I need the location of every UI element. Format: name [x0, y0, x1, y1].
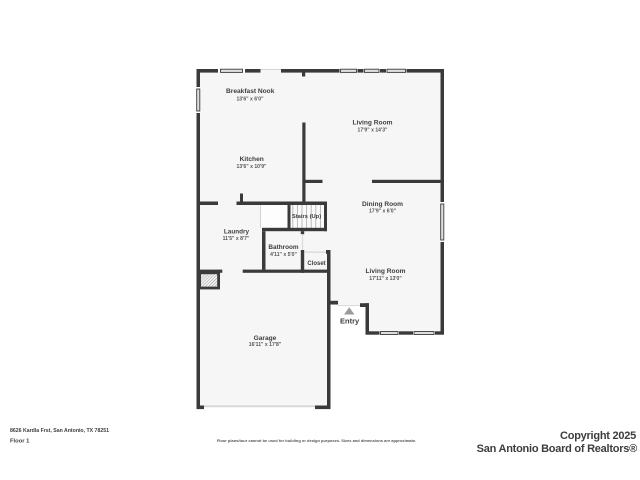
svg-text:17'9" x 6'0": 17'9" x 6'0" [369, 208, 397, 214]
svg-text:17'11" x 13'0": 17'11" x 13'0" [369, 276, 402, 282]
svg-text:13'6" x 6'0": 13'6" x 6'0" [236, 96, 264, 102]
svg-text:Dining Room: Dining Room [362, 201, 403, 208]
svg-text:4'11" x 5'0": 4'11" x 5'0" [270, 252, 297, 258]
svg-text:Bathroom: Bathroom [268, 244, 298, 251]
svg-text:Floor plans/tour cannot be use: Floor plans/tour cannot be used for buil… [217, 438, 416, 443]
svg-text:13'6" x 10'9": 13'6" x 10'9" [237, 164, 267, 170]
svg-text:Floor 1: Floor 1 [10, 439, 30, 445]
svg-text:Entry: Entry [340, 316, 360, 325]
svg-text:Closet: Closet [307, 261, 325, 267]
svg-text:17'9" x 14'3": 17'9" x 14'3" [358, 127, 388, 133]
svg-text:Living Room: Living Room [353, 120, 393, 127]
svg-text:Kitchen: Kitchen [240, 156, 264, 163]
svg-text:Copyright 2025: Copyright 2025 [560, 430, 636, 442]
svg-text:Breakfast Nook: Breakfast Nook [226, 88, 275, 95]
svg-text:8626 Kardla Frst, San Antonio,: 8626 Kardla Frst, San Antonio, TX 78251 [10, 428, 109, 434]
svg-text:San Antonio Board of Realtors®: San Antonio Board of Realtors® [477, 443, 637, 455]
svg-text:16'11" x 17'8": 16'11" x 17'8" [249, 342, 282, 348]
svg-text:11'5" x 8'7": 11'5" x 8'7" [223, 236, 250, 242]
svg-text:Garage: Garage [254, 335, 277, 342]
svg-text:Stairs (Up): Stairs (Up) [292, 214, 321, 220]
svg-text:Laundry: Laundry [224, 228, 250, 235]
svg-text:Living Room: Living Room [366, 268, 406, 275]
